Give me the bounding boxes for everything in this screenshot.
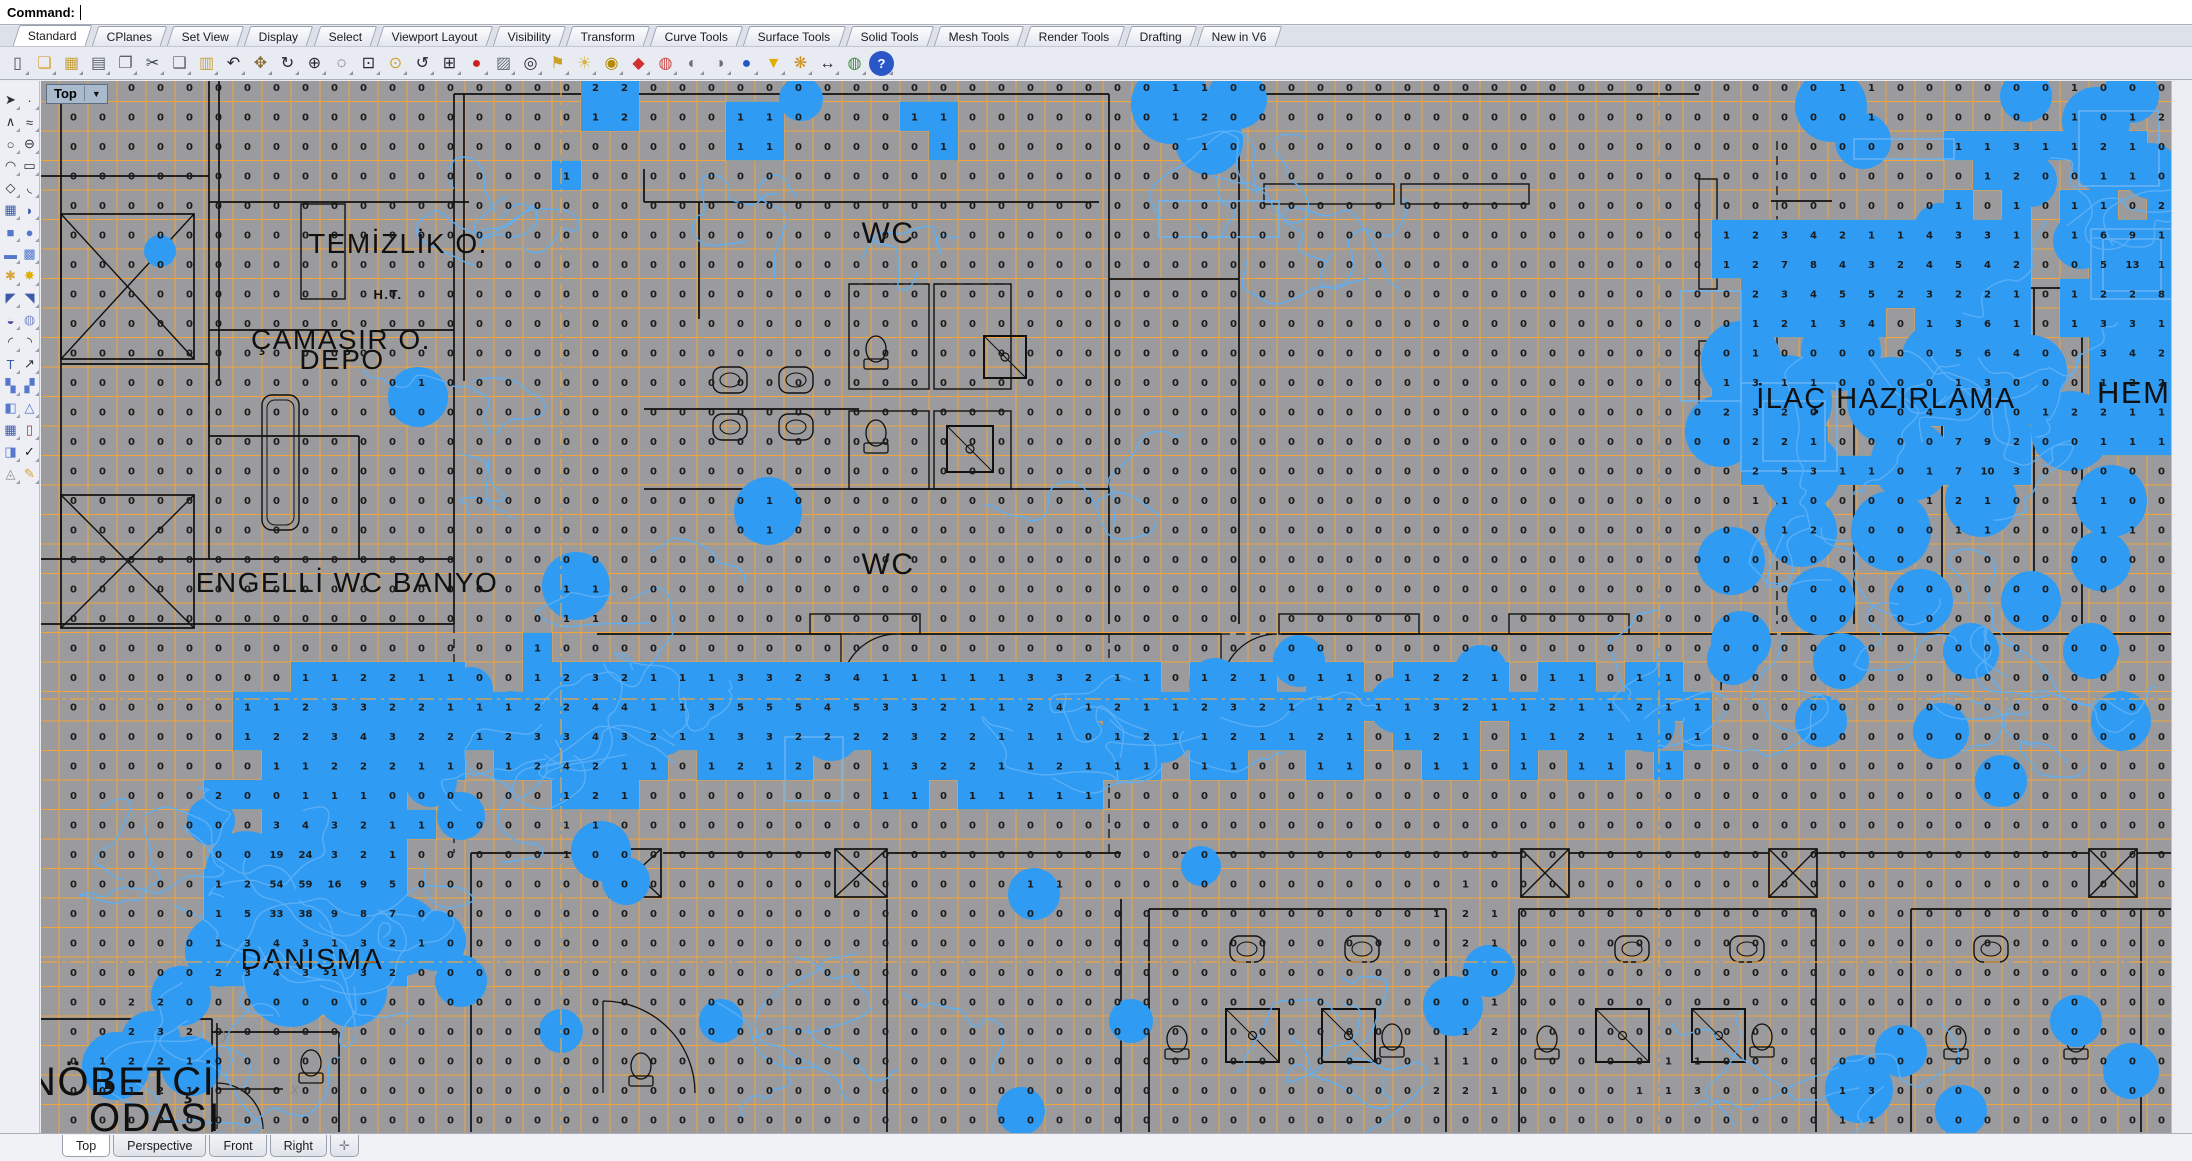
sidebar-tool-circle-icon[interactable]: ○ xyxy=(1,133,20,155)
cell-count: 0 xyxy=(447,821,454,832)
cell-count: 0 xyxy=(1404,526,1411,537)
cell-count: 0 xyxy=(360,998,367,1009)
help-icon[interactable]: ? xyxy=(869,51,894,76)
cell-count: 0 xyxy=(1984,1057,1991,1068)
cell-count: 0 xyxy=(1578,880,1585,891)
cell-count: 0 xyxy=(1201,467,1208,478)
right-panel-edge[interactable] xyxy=(2171,81,2192,1133)
cell-count: 0 xyxy=(1491,791,1498,802)
cell-count: 0 xyxy=(1085,998,1092,1009)
cell-count: 1 xyxy=(1636,1086,1643,1097)
cell-count: 0 xyxy=(1085,909,1092,920)
cell-count: 0 xyxy=(1317,998,1324,1009)
sidebar-tool-polyline-icon[interactable]: ∧ xyxy=(1,111,20,133)
options-gear-icon[interactable]: ❋ xyxy=(788,51,813,76)
cell-count: 0 xyxy=(244,290,251,301)
sidebar-tool-boolean-tools-icon[interactable]: ◒ xyxy=(1,309,20,331)
cell-count: 0 xyxy=(1143,437,1150,448)
cell-count: 0 xyxy=(157,673,164,684)
cell-count: 1 xyxy=(1636,732,1643,743)
cell-count: 0 xyxy=(1520,1057,1527,1068)
cell-count: 0 xyxy=(1549,467,1556,478)
paste-icon[interactable]: ▥ xyxy=(194,51,219,76)
cell-count: 0 xyxy=(1317,496,1324,507)
sidebar-tool-align-icon[interactable]: ▞ xyxy=(20,375,39,397)
shaded-mode-icon[interactable]: ◐ xyxy=(680,51,705,76)
cell-count: 0 xyxy=(853,496,860,507)
cell-count: 1 xyxy=(911,113,918,124)
cell-count: 0 xyxy=(1433,231,1440,242)
cell-count: 1 xyxy=(592,113,599,124)
cell-count: 0 xyxy=(244,349,251,360)
new-viewport-tab-button[interactable]: ✛ xyxy=(330,1135,359,1157)
cell-count: 0 xyxy=(2071,349,2078,360)
cell-count: 1 xyxy=(2100,201,2107,212)
cell-count: 0 xyxy=(969,614,976,625)
sidebar-tool-trim-icon[interactable]: ◤ xyxy=(1,287,20,309)
cell-count: 0 xyxy=(998,909,1005,920)
cell-count: 1 xyxy=(1056,880,1063,891)
cell-count: 0 xyxy=(302,201,309,212)
zoom-extents-icon[interactable]: ⊕ xyxy=(302,51,327,76)
cell-count: 0 xyxy=(1897,142,1904,153)
cell-count: 0 xyxy=(418,231,425,242)
menu-tab-viewport-layout[interactable]: Viewport Layout xyxy=(377,26,493,46)
sidebar-tool-freeform-curve-icon[interactable]: ≈ xyxy=(20,111,39,133)
cell-count: 0 xyxy=(273,496,280,507)
cell-count: 0 xyxy=(273,319,280,330)
cell-count: 0 xyxy=(157,142,164,153)
sidebar-tool-adjustable-blend-icon[interactable]: ◜ xyxy=(1,331,20,353)
cell-count: 0 xyxy=(1375,83,1382,94)
cell-count: 0 xyxy=(215,526,222,537)
cell-count: 0 xyxy=(766,83,773,94)
cell-count: 0 xyxy=(621,968,628,979)
cell-count: 2 xyxy=(1723,408,1730,419)
cell-count: 0 xyxy=(2071,1086,2078,1097)
cell-count: 1 xyxy=(1027,791,1034,802)
measure-distance-icon[interactable]: ↔ xyxy=(815,51,840,76)
cell-count: 0 xyxy=(2013,968,2020,979)
cell-count: 0 xyxy=(70,113,77,124)
viewport-layout-icon[interactable]: ⊞ xyxy=(437,51,462,76)
cell-count: 0 xyxy=(1694,349,1701,360)
sidebar-tool-sphere-icon[interactable]: ● xyxy=(20,221,39,243)
cell-count: 0 xyxy=(911,526,918,537)
cell-count: 0 xyxy=(1636,201,1643,212)
cell-count: 0 xyxy=(1172,880,1179,891)
cell-count: 0 xyxy=(1665,378,1672,389)
menu-tab-new-in-v6[interactable]: New in V6 xyxy=(1196,26,1281,46)
menu-tab-transform[interactable]: Transform xyxy=(566,26,651,46)
cell-count: 0 xyxy=(1172,762,1179,773)
menu-tab-surface-tools[interactable]: Surface Tools xyxy=(743,26,846,46)
pan-icon[interactable]: ✥ xyxy=(248,51,273,76)
lamp-icon[interactable]: ☀ xyxy=(572,51,597,76)
new-file-icon[interactable]: ▯ xyxy=(5,51,30,76)
cell-count: 0 xyxy=(592,201,599,212)
cell-count: 0 xyxy=(1375,496,1382,507)
open-file-icon[interactable]: ❏ xyxy=(32,51,57,76)
cell-count: 1 xyxy=(1607,762,1614,773)
cell-count: 0 xyxy=(1665,201,1672,212)
save-file-icon[interactable]: ▦ xyxy=(59,51,84,76)
cell-count: 0 xyxy=(1404,821,1411,832)
cell-count: 0 xyxy=(1230,408,1237,419)
cell-count: 0 xyxy=(1868,939,1875,950)
cell-count: 0 xyxy=(302,585,309,596)
cell-count: 0 xyxy=(1288,201,1295,212)
cell-count: 1 xyxy=(1085,791,1092,802)
cell-count: 0 xyxy=(389,1116,396,1127)
cell-count: 0 xyxy=(1317,1116,1324,1127)
undo-icon[interactable]: ↶ xyxy=(221,51,246,76)
cell-count: 0 xyxy=(2013,703,2020,714)
cell-count: 0 xyxy=(186,201,193,212)
shield-icon[interactable]: ◆ xyxy=(626,51,651,76)
cell-count: 3 xyxy=(1230,703,1237,714)
cell-count: 0 xyxy=(2100,762,2107,773)
cell-count: 0 xyxy=(940,555,947,566)
copy-icon[interactable]: ❑ xyxy=(167,51,192,76)
annotate-icon[interactable]: ⚑ xyxy=(545,51,570,76)
cell-count: 1 xyxy=(563,791,570,802)
copy-to-clipboard-icon[interactable]: ❐ xyxy=(113,51,138,76)
cell-count: 0 xyxy=(215,260,222,271)
cell-count: 0 xyxy=(998,142,1005,153)
cell-count: 0 xyxy=(505,791,512,802)
cell-count: 0 xyxy=(418,1027,425,1038)
rendered-mode-icon[interactable]: ● xyxy=(734,51,759,76)
sidebar-tool-cylinder-icon[interactable]: ▬ xyxy=(1,243,20,265)
sidebar-tool-surface-from-cv-icon[interactable]: ▦ xyxy=(1,199,20,221)
sidebar-tool-extrude-icon[interactable]: △ xyxy=(20,397,39,419)
cell-count: 1 xyxy=(534,673,541,684)
cell-count: 0 xyxy=(186,349,193,360)
cell-count: 0 xyxy=(360,644,367,655)
hatch-icon[interactable]: ▨ xyxy=(491,51,516,76)
command-bar[interactable]: Command: xyxy=(0,0,2192,25)
cell-count: 0 xyxy=(1056,260,1063,271)
cell-count: 0 xyxy=(1085,1057,1092,1068)
cell-count: 0 xyxy=(360,585,367,596)
cell-count: 1 xyxy=(2129,172,2136,183)
cell-count: 0 xyxy=(215,644,222,655)
cell-count: 5 xyxy=(1955,349,1962,360)
cell-count: 0 xyxy=(1607,408,1614,419)
cell-count: 0 xyxy=(824,909,831,920)
cell-count: 0 xyxy=(911,231,918,242)
cut-icon[interactable]: ✂ xyxy=(140,51,165,76)
print-icon[interactable]: ▤ xyxy=(86,51,111,76)
cell-count: 0 xyxy=(1433,614,1440,625)
cell-count: 2 xyxy=(1230,673,1237,684)
zoom-selected-icon[interactable]: ⊙ xyxy=(383,51,408,76)
cell-count: 0 xyxy=(447,83,454,94)
cell-count: 0 xyxy=(679,467,686,478)
cell-count: 0 xyxy=(1230,231,1237,242)
cell-count: 0 xyxy=(418,1086,425,1097)
cell-count: 0 xyxy=(1520,791,1527,802)
cell-count: 0 xyxy=(447,791,454,802)
cell-count: 0 xyxy=(969,1027,976,1038)
menu-tab-drafting[interactable]: Drafting xyxy=(1124,26,1197,46)
cell-count: 0 xyxy=(302,644,309,655)
viewport-title-dropdown[interactable]: Top ▼ xyxy=(46,84,108,104)
cell-count: 0 xyxy=(2100,850,2107,861)
cell-count: 3 xyxy=(592,673,599,684)
lock-icon[interactable]: ◉ xyxy=(599,51,624,76)
heat-blob xyxy=(1685,395,1757,467)
cell-count: 0 xyxy=(1114,260,1121,271)
cell-count: 0 xyxy=(592,1086,599,1097)
sidebar-tool-rectangular-array-icon[interactable]: ▦ xyxy=(1,419,20,441)
cell-count: 0 xyxy=(273,378,280,389)
cell-count: 0 xyxy=(2071,850,2078,861)
sidebar-tool-check-objects-icon[interactable]: ✓ xyxy=(20,441,39,463)
cell-count: 0 xyxy=(1810,998,1817,1009)
cell-count: 1 xyxy=(1027,762,1034,773)
cell-count: 0 xyxy=(360,1116,367,1127)
cell-count: 0 xyxy=(1984,732,1991,743)
sidebar-tool-explode-icon[interactable]: ✸ xyxy=(20,265,39,287)
menu-tab-set-view[interactable]: Set View xyxy=(167,26,245,46)
cell-count: 0 xyxy=(1549,1027,1556,1038)
cell-count: 0 xyxy=(1085,496,1092,507)
zoom-window-icon[interactable]: ⊡ xyxy=(356,51,381,76)
room-label: DEPO xyxy=(299,344,384,375)
viewport-tab-top[interactable]: Top xyxy=(62,1135,110,1157)
cell-count: 3 xyxy=(389,732,396,743)
sidebar-tool-arc-icon[interactable]: ◠ xyxy=(1,155,20,177)
cell-count: 0 xyxy=(650,260,657,271)
sidebar-tool-fillet-curve-icon[interactable]: ◟ xyxy=(20,177,39,199)
cell-count: 0 xyxy=(563,231,570,242)
sidebar-tool-group-icon[interactable]: ▚ xyxy=(1,375,20,397)
cell-count: 0 xyxy=(824,968,831,979)
zoom-dynamic-icon[interactable]: ◌ xyxy=(329,51,354,76)
cell-count: 0 xyxy=(853,821,860,832)
menu-tab-display[interactable]: Display xyxy=(244,26,314,46)
menu-tab-standard[interactable]: Standard xyxy=(13,25,93,46)
top-viewport[interactable]: TEMİZLİK O.H.T.ÇAMAŞIR O.DEPOWCWCENGELLİ… xyxy=(41,81,2172,1133)
sidebar-tool-move-copy-icon[interactable]: ↗ xyxy=(20,353,39,375)
cell-count: 0 xyxy=(534,113,541,124)
cell-count: 0 xyxy=(157,644,164,655)
color-wheel-icon[interactable]: ◍ xyxy=(653,51,678,76)
cell-count: 0 xyxy=(2042,526,2049,537)
sidebar-tool-surface-edit-icon[interactable]: ▩ xyxy=(20,243,39,265)
cell-count: 0 xyxy=(99,585,106,596)
menu-tab-curve-tools[interactable]: Curve Tools xyxy=(650,26,744,46)
selection-filter-icon[interactable]: ▼ xyxy=(761,51,786,76)
cell-count: 0 xyxy=(476,172,483,183)
sidebar-tool-point-icon[interactable]: · xyxy=(20,89,39,111)
cell-count: 0 xyxy=(2129,467,2136,478)
cell-count: 0 xyxy=(2013,791,2020,802)
cell-count: 0 xyxy=(1230,1057,1237,1068)
cell-count: 0 xyxy=(1462,260,1469,271)
cell-count: 0 xyxy=(1404,437,1411,448)
cell-count: 0 xyxy=(1897,968,1904,979)
viewport-tab-front[interactable]: Front xyxy=(209,1135,266,1157)
sidebar-tool-drape-icon[interactable]: ◍ xyxy=(20,309,39,331)
cell-count: 0 xyxy=(1549,762,1556,773)
sidebar-tool-select-icon[interactable]: ➤ xyxy=(1,89,20,111)
sidebar-tool-cone-icon[interactable]: ◬ xyxy=(1,463,20,485)
sidebar-tool-ellipse-icon[interactable]: ⊖ xyxy=(20,133,39,155)
cell-count: 1 xyxy=(1172,703,1179,714)
render-icon[interactable]: ● xyxy=(464,51,489,76)
cell-count: 0 xyxy=(1027,260,1034,271)
cell-count: 0 xyxy=(882,644,889,655)
cell-count: 0 xyxy=(737,909,744,920)
menu-tab-solid-tools[interactable]: Solid Tools xyxy=(846,26,934,46)
cell-count: 0 xyxy=(737,260,744,271)
cell-count: 0 xyxy=(389,201,396,212)
cell-count: 0 xyxy=(1201,349,1208,360)
cell-count: 16 xyxy=(328,880,342,891)
sidebar-tool-polygon-icon[interactable]: ◇ xyxy=(1,177,20,199)
circle-center-icon[interactable]: ◎ xyxy=(518,51,543,76)
cell-count: 0 xyxy=(1636,555,1643,566)
cell-count: 1 xyxy=(1404,732,1411,743)
sidebar-tool-block-tools-icon[interactable]: ✱ xyxy=(1,265,20,287)
cell-count: 2 xyxy=(1752,290,1759,301)
cell-count: 0 xyxy=(998,290,1005,301)
cell-count: 0 xyxy=(853,968,860,979)
cell-count: 0 xyxy=(1288,142,1295,153)
cell-count: 0 xyxy=(708,408,715,419)
cell-count: 0 xyxy=(1578,290,1585,301)
cell-count: 0 xyxy=(1346,437,1353,448)
cell-count: 0 xyxy=(70,555,77,566)
viewport-tab-perspective[interactable]: Perspective xyxy=(113,1135,206,1157)
menu-tab-select[interactable]: Select xyxy=(313,26,377,46)
menu-tab-visibility[interactable]: Visibility xyxy=(493,26,567,46)
cell-count: 0 xyxy=(2071,998,2078,1009)
cell-count: 0 xyxy=(2129,703,2136,714)
cell-count: 0 xyxy=(592,939,599,950)
cell-count: 0 xyxy=(679,555,686,566)
menu-tab-render-tools[interactable]: Render Tools xyxy=(1024,26,1125,46)
cell-count: 0 xyxy=(1694,791,1701,802)
sidebar-tool-distribute-icon[interactable]: ▯ xyxy=(20,419,39,441)
sidebar-tool-layer-tools-icon[interactable]: ◨ xyxy=(1,441,20,463)
cell-count: 1 xyxy=(1926,467,1933,478)
cell-count: 0 xyxy=(1810,113,1817,124)
cell-count: 0 xyxy=(1578,555,1585,566)
undo-view-change-icon[interactable]: ↺ xyxy=(410,51,435,76)
cell-count: 0 xyxy=(1259,909,1266,920)
cell-count: 0 xyxy=(737,231,744,242)
cell-count: 0 xyxy=(244,496,251,507)
cell-count: 0 xyxy=(2071,703,2078,714)
cell-count: 1 xyxy=(186,1057,193,1068)
cell-count: 0 xyxy=(1462,142,1469,153)
cell-count: 0 xyxy=(2013,408,2020,419)
cell-count: 0 xyxy=(1926,113,1933,124)
sidebar-tool-paint-tools-icon[interactable]: ✎ xyxy=(20,463,39,485)
cell-count: 0 xyxy=(2158,880,2165,891)
viewport-tab-right[interactable]: Right xyxy=(270,1135,327,1157)
cell-count: 0 xyxy=(998,113,1005,124)
ghosted-mode-icon[interactable]: ◑ xyxy=(707,51,732,76)
cell-count: 1 xyxy=(1868,83,1875,94)
cell-count: 0 xyxy=(360,467,367,478)
cell-count: 4 xyxy=(1984,260,1991,271)
cell-count: 0 xyxy=(824,496,831,507)
cell-count: 0 xyxy=(882,939,889,950)
cell-count: 0 xyxy=(621,644,628,655)
cell-count: 1 xyxy=(882,762,889,773)
cell-count: 1 xyxy=(1462,1057,1469,1068)
cell-count: 0 xyxy=(360,201,367,212)
sidebar-tool-solid-cap-icon[interactable]: ◧ xyxy=(1,397,20,419)
sidebar-tool-rectangle-icon[interactable]: ▭ xyxy=(20,155,39,177)
sidebar-tool-box-icon[interactable]: ■ xyxy=(1,221,20,243)
cell-count: 0 xyxy=(853,437,860,448)
cell-count: 0 xyxy=(2042,437,2049,448)
cell-count: 0 xyxy=(1375,526,1382,537)
sidebar-tool-text-icon[interactable]: T xyxy=(1,353,20,375)
tool-sidebar: ➤·∧≈○⊖◠▭◇◟▦◗■●▬▩✱✸◤◥◒◍◜◝T↗▚▞◧△▦▯◨✓◬✎ xyxy=(0,81,40,1133)
cell-count: 1 xyxy=(708,732,715,743)
cell-count: 0 xyxy=(1462,850,1469,861)
cell-count: 0 xyxy=(1549,850,1556,861)
menu-tab-mesh-tools[interactable]: Mesh Tools xyxy=(933,26,1024,46)
rotate-view-icon[interactable]: ↻ xyxy=(275,51,300,76)
cell-count: 0 xyxy=(2100,585,2107,596)
cell-count: 0 xyxy=(302,113,309,124)
sidebar-tool-split-icon[interactable]: ◥ xyxy=(20,287,39,309)
sidebar-tool-arc-blend-icon[interactable]: ◝ xyxy=(20,331,39,353)
cell-count: 0 xyxy=(2100,791,2107,802)
menu-tab-cplanes[interactable]: CPlanes xyxy=(91,26,167,46)
heat-blob xyxy=(542,552,610,620)
cell-count: 1 xyxy=(1433,909,1440,920)
viewport-canvas[interactable]: TEMİZLİK O.H.T.ÇAMAŞIR O.DEPOWCWCENGELLİ… xyxy=(41,81,2172,1133)
cell-count: 0 xyxy=(476,644,483,655)
cell-count: 0 xyxy=(1636,968,1643,979)
cell-count: 0 xyxy=(998,378,1005,389)
cell-count: 1 xyxy=(2100,437,2107,448)
cell-count: 0 xyxy=(1462,614,1469,625)
earth-anchor-icon[interactable]: ◍ xyxy=(842,51,867,76)
cell-count: 3 xyxy=(302,968,309,979)
cell-count: 1 xyxy=(2158,319,2165,330)
cell-count: 0 xyxy=(447,1116,454,1127)
cell-count: 1 xyxy=(2013,201,2020,212)
cell-count: 0 xyxy=(1636,1027,1643,1038)
cell-count: 0 xyxy=(824,113,831,124)
cell-count: 0 xyxy=(302,467,309,478)
cell-count: 0 xyxy=(1404,113,1411,124)
cell-count: 0 xyxy=(1433,83,1440,94)
cell-count: 5 xyxy=(1868,290,1875,301)
sidebar-tool-patch-surface-icon[interactable]: ◗ xyxy=(20,199,39,221)
cell-count: 0 xyxy=(1027,437,1034,448)
cell-count: 0 xyxy=(1694,467,1701,478)
cell-count: 0 xyxy=(1810,939,1817,950)
cell-count: 0 xyxy=(1288,231,1295,242)
cell-count: 0 xyxy=(795,83,802,94)
cell-count: 0 xyxy=(389,437,396,448)
cell-count: 0 xyxy=(1520,555,1527,566)
cell-count: 0 xyxy=(766,555,773,566)
cell-count: 0 xyxy=(1839,850,1846,861)
cell-count: 0 xyxy=(1897,703,1904,714)
